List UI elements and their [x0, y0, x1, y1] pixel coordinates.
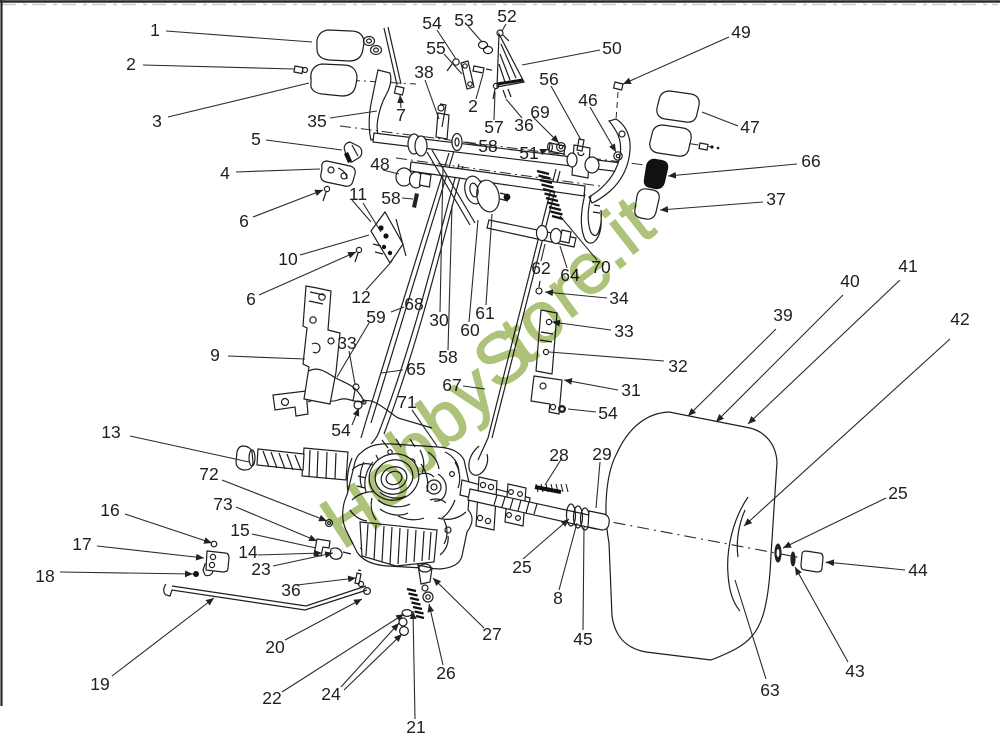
- svg-text:36: 36: [281, 580, 300, 600]
- svg-text:56: 56: [539, 69, 558, 89]
- svg-text:2: 2: [126, 54, 136, 74]
- svg-text:35: 35: [307, 111, 326, 131]
- svg-text:45: 45: [573, 629, 592, 649]
- svg-text:63: 63: [760, 680, 779, 700]
- svg-text:8: 8: [553, 588, 563, 608]
- svg-text:33: 33: [614, 321, 633, 341]
- svg-text:25: 25: [512, 557, 531, 577]
- svg-text:48: 48: [370, 154, 389, 174]
- svg-text:15: 15: [230, 520, 249, 540]
- svg-text:24: 24: [321, 684, 341, 704]
- svg-text:20: 20: [265, 637, 285, 657]
- svg-text:9: 9: [210, 345, 220, 365]
- svg-text:40: 40: [840, 271, 860, 291]
- svg-text:41: 41: [898, 256, 917, 276]
- svg-text:29: 29: [592, 444, 611, 464]
- svg-text:42: 42: [950, 309, 969, 329]
- svg-text:13: 13: [101, 422, 120, 442]
- svg-text:7: 7: [396, 105, 406, 125]
- svg-text:46: 46: [578, 90, 597, 110]
- svg-text:28: 28: [549, 445, 568, 465]
- svg-text:57: 57: [484, 117, 503, 137]
- svg-text:54: 54: [422, 13, 442, 33]
- svg-text:6: 6: [246, 289, 256, 309]
- svg-text:39: 39: [773, 305, 792, 325]
- svg-text:22: 22: [262, 688, 281, 708]
- svg-text:4: 4: [220, 163, 230, 183]
- svg-text:30: 30: [429, 310, 449, 330]
- svg-text:65: 65: [406, 359, 425, 379]
- svg-text:49: 49: [731, 22, 750, 42]
- svg-text:26: 26: [436, 663, 455, 683]
- svg-text:17: 17: [72, 534, 91, 554]
- svg-text:52: 52: [497, 6, 516, 26]
- svg-text:11: 11: [349, 184, 367, 204]
- svg-text:2: 2: [468, 96, 478, 116]
- svg-text:58: 58: [478, 136, 497, 156]
- svg-text:37: 37: [766, 189, 785, 209]
- svg-text:47: 47: [740, 117, 759, 137]
- svg-text:27: 27: [482, 624, 501, 644]
- svg-text:16: 16: [100, 500, 119, 520]
- svg-text:55: 55: [426, 38, 445, 58]
- svg-text:69: 69: [530, 102, 549, 122]
- svg-text:21: 21: [406, 717, 425, 737]
- svg-text:54: 54: [598, 403, 618, 423]
- svg-text:38: 38: [414, 62, 433, 82]
- svg-text:50: 50: [602, 38, 622, 58]
- svg-text:43: 43: [845, 661, 864, 681]
- svg-text:31: 31: [621, 380, 640, 400]
- svg-text:6: 6: [239, 211, 249, 231]
- svg-text:53: 53: [454, 10, 473, 30]
- svg-text:33: 33: [337, 333, 356, 353]
- svg-text:44: 44: [908, 560, 928, 580]
- svg-text:51: 51: [519, 143, 538, 163]
- svg-text:10: 10: [278, 249, 298, 269]
- svg-text:1: 1: [150, 20, 160, 40]
- svg-text:18: 18: [35, 566, 54, 586]
- svg-text:54: 54: [331, 420, 351, 440]
- svg-text:23: 23: [251, 559, 270, 579]
- svg-text:32: 32: [668, 356, 687, 376]
- svg-text:12: 12: [351, 287, 370, 307]
- svg-text:66: 66: [801, 151, 820, 171]
- svg-text:5: 5: [251, 129, 261, 149]
- svg-text:73: 73: [213, 494, 232, 514]
- svg-text:59: 59: [366, 307, 385, 327]
- svg-text:58: 58: [381, 188, 400, 208]
- svg-text:25: 25: [888, 483, 907, 503]
- svg-text:3: 3: [152, 111, 162, 131]
- svg-text:68: 68: [404, 294, 423, 314]
- svg-text:72: 72: [199, 464, 218, 484]
- svg-text:19: 19: [90, 674, 109, 694]
